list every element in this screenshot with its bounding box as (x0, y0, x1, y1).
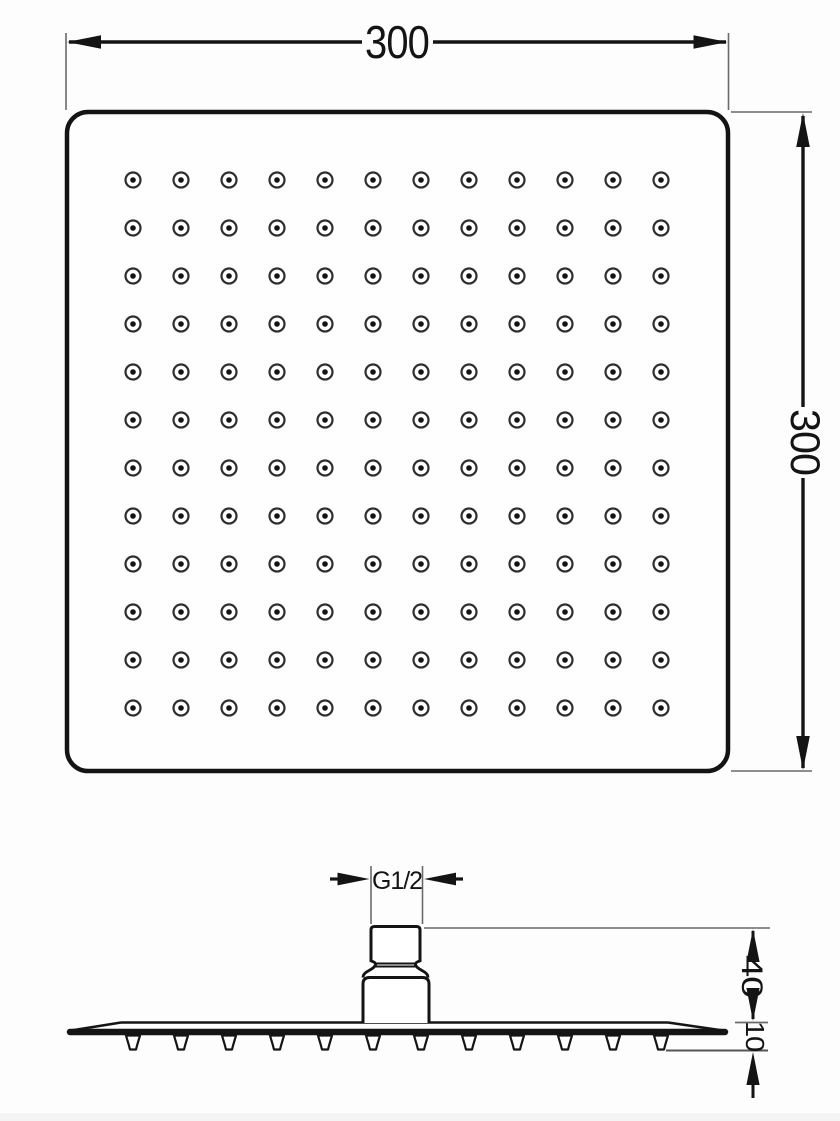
nozzle-center (226, 177, 232, 183)
nozzle-center (274, 657, 280, 663)
dimension-label-width: 300 (365, 16, 429, 68)
nozzle-center (226, 513, 232, 519)
arrowhead-left-icon (424, 873, 456, 886)
nozzle-center (130, 177, 136, 183)
nozzle-center (466, 513, 472, 519)
nozzle-center (658, 417, 664, 423)
nozzle-center (418, 369, 424, 375)
arrowhead-left-icon (67, 35, 101, 49)
dimension-thread: G1/2 (330, 866, 463, 924)
nozzle-center (226, 273, 232, 279)
nozzle-center (514, 417, 520, 423)
shower-plate-outline (67, 112, 728, 771)
nozzle-center (466, 177, 472, 183)
nozzle-tooth (126, 1036, 140, 1050)
nozzle-center (658, 273, 664, 279)
nozzle-center (466, 417, 472, 423)
arrowhead-right-icon (694, 35, 728, 49)
nozzle-center (562, 561, 568, 567)
nozzle-center (466, 273, 472, 279)
arrowhead-down-icon (796, 736, 810, 770)
nozzle-center (322, 369, 328, 375)
nozzle-center (658, 609, 664, 615)
nozzle-center (514, 657, 520, 663)
nozzle-center (274, 369, 280, 375)
nozzle-center (226, 465, 232, 471)
nozzle-center (514, 561, 520, 567)
nozzle-center (418, 609, 424, 615)
nozzle-center (370, 321, 376, 327)
nozzle-center (658, 369, 664, 375)
nozzle-center (610, 273, 616, 279)
nozzle-center (466, 321, 472, 327)
nozzle-center (226, 225, 232, 231)
technical-drawing-page: 300 300 G1/2 (0, 0, 840, 1121)
nozzle-center (370, 369, 376, 375)
nozzle-center (130, 705, 136, 711)
nozzle-center (562, 465, 568, 471)
nozzle-center (418, 657, 424, 663)
connector-height-label: 40 (735, 955, 768, 997)
nozzle-center (514, 465, 520, 471)
nozzle-center (562, 369, 568, 375)
nozzle-center (658, 465, 664, 471)
nozzle-center (466, 609, 472, 615)
nozzle-center (610, 561, 616, 567)
nozzle-center (130, 465, 136, 471)
nozzle-center (178, 321, 184, 327)
nozzle-center (178, 561, 184, 567)
nozzle-tooth (222, 1036, 236, 1050)
nozzle-center (658, 561, 664, 567)
nozzle-tooth (318, 1036, 332, 1050)
nozzle-center (322, 417, 328, 423)
nozzle-center (226, 657, 232, 663)
nozzle-center (562, 705, 568, 711)
nozzle-center (226, 417, 232, 423)
nozzle-center (130, 609, 136, 615)
nozzle-center (178, 177, 184, 183)
nozzle-center (658, 657, 664, 663)
nozzle-center (322, 273, 328, 279)
dimension-connector-height: 40 (424, 928, 770, 1021)
nozzle-center (466, 465, 472, 471)
nozzle-center (274, 609, 280, 615)
nozzle-tooth (366, 1036, 380, 1050)
nozzle-center (178, 513, 184, 519)
nozzle-center (418, 273, 424, 279)
nozzle-center (370, 561, 376, 567)
nozzle-center (610, 369, 616, 375)
nozzle-center (178, 705, 184, 711)
top-view (67, 112, 728, 771)
nozzle-center (610, 417, 616, 423)
nozzle-center (610, 465, 616, 471)
connector-waist-right (415, 961, 428, 978)
nozzle-center (562, 609, 568, 615)
nozzle-center (178, 273, 184, 279)
shower-head-technical-drawing: 300 300 G1/2 (0, 0, 840, 1121)
nozzle-center (562, 273, 568, 279)
nozzle-center (178, 225, 184, 231)
nozzle-center (418, 513, 424, 519)
inlet-pipe-outline (371, 927, 420, 963)
nozzle-center (322, 465, 328, 471)
nozzle-teeth-row (126, 1036, 668, 1050)
arrowhead-up-icon (746, 1052, 759, 1085)
nozzle-center (322, 561, 328, 567)
nozzle-center (514, 513, 520, 519)
nozzle-center (418, 705, 424, 711)
nozzle-center (130, 321, 136, 327)
nozzle-center (562, 177, 568, 183)
nozzle-center (658, 177, 664, 183)
nozzle-center (418, 417, 424, 423)
nozzle-center (274, 465, 280, 471)
nozzle-center (610, 321, 616, 327)
nozzle-center (466, 705, 472, 711)
nozzle-center (418, 177, 424, 183)
nozzle-center (562, 321, 568, 327)
nozzle-center (658, 705, 664, 711)
nozzle-center (130, 657, 136, 663)
page-bottom-strip (0, 1113, 840, 1121)
nozzle-center (130, 369, 136, 375)
nozzle-center (274, 321, 280, 327)
nozzle-center (226, 561, 232, 567)
nozzle-center (514, 225, 520, 231)
nozzle-center (274, 273, 280, 279)
nozzle-center (130, 417, 136, 423)
nozzle-center (178, 657, 184, 663)
nozzle-center (610, 513, 616, 519)
nozzle-center (610, 177, 616, 183)
nozzle-tooth (174, 1036, 188, 1050)
nozzle-center (466, 561, 472, 567)
nozzle-center (466, 225, 472, 231)
nozzle-center (418, 321, 424, 327)
nozzle-center (370, 705, 376, 711)
nozzle-center (658, 225, 664, 231)
nozzle-center (226, 609, 232, 615)
nozzle-center (514, 705, 520, 711)
nozzle-center (370, 465, 376, 471)
nozzle-center (322, 705, 328, 711)
nozzle-center (322, 513, 328, 519)
nozzle-center (514, 273, 520, 279)
nozzle-center (322, 609, 328, 615)
nozzle-center (274, 177, 280, 183)
nozzle-center (418, 225, 424, 231)
nozzle-center (274, 225, 280, 231)
nozzle-center (178, 417, 184, 423)
mounting-block-outline (363, 978, 429, 1024)
nozzle-center (370, 609, 376, 615)
nozzle-tooth (414, 1036, 428, 1050)
nozzle-center (226, 369, 232, 375)
nozzle-center (418, 465, 424, 471)
nozzle-center (562, 225, 568, 231)
nozzle-center (226, 321, 232, 327)
nozzle-center (514, 177, 520, 183)
nozzle-center (370, 513, 376, 519)
nozzle-tooth (270, 1036, 284, 1050)
nozzle-tooth (462, 1036, 476, 1050)
plate-thickness-label: 10 (740, 1021, 770, 1052)
nozzle-tooth (654, 1036, 668, 1050)
nozzle-center (274, 561, 280, 567)
nozzle-center (274, 513, 280, 519)
nozzle-center (322, 177, 328, 183)
nozzle-center (178, 465, 184, 471)
nozzle-center (514, 369, 520, 375)
nozzle-center (178, 609, 184, 615)
nozzle-center (610, 609, 616, 615)
nozzle-center (370, 273, 376, 279)
nozzle-center (130, 225, 136, 231)
nozzle-center (418, 561, 424, 567)
nozzle-center (658, 513, 664, 519)
nozzle-center (370, 177, 376, 183)
thread-size-label: G1/2 (372, 867, 422, 895)
nozzle-center (610, 657, 616, 663)
nozzle-center (322, 657, 328, 663)
nozzle-center (226, 705, 232, 711)
nozzle-center (610, 705, 616, 711)
dimension-top-width: 300 (66, 16, 729, 110)
nozzle-center (322, 225, 328, 231)
nozzle-center (562, 657, 568, 663)
nozzle-center (466, 657, 472, 663)
nozzle-center (466, 369, 472, 375)
side-view (70, 927, 725, 1050)
nozzle-tooth (558, 1036, 572, 1050)
nozzle-center (274, 417, 280, 423)
dimension-side-height: 300 (731, 112, 829, 771)
nozzle-center (130, 273, 136, 279)
nozzle-center (562, 513, 568, 519)
nozzle-center (178, 369, 184, 375)
nozzle-center (514, 321, 520, 327)
nozzle-center (514, 609, 520, 615)
arrowhead-up-icon (796, 113, 810, 147)
nozzle-center (658, 321, 664, 327)
nozzle-center (370, 657, 376, 663)
nozzle-center (130, 513, 136, 519)
dimension-label-height: 300 (782, 409, 829, 475)
nozzle-center (274, 705, 280, 711)
nozzle-tooth (510, 1036, 524, 1050)
nozzle-center (562, 417, 568, 423)
nozzle-tooth (606, 1036, 620, 1050)
nozzle-center (610, 225, 616, 231)
nozzle-center (130, 561, 136, 567)
arrowhead-right-icon (338, 873, 370, 886)
nozzle-center (370, 417, 376, 423)
connector-waist-left (363, 961, 376, 978)
nozzle-center (322, 321, 328, 327)
nozzle-center (370, 225, 376, 231)
